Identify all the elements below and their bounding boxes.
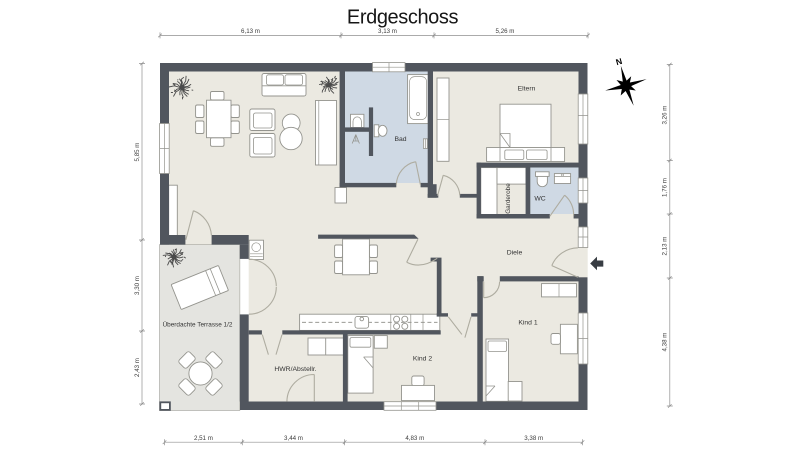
svg-text:4,38 m: 4,38 m — [662, 333, 669, 352]
svg-text:Eltern: Eltern — [518, 85, 536, 92]
svg-text:6,13 m: 6,13 m — [241, 28, 260, 35]
svg-text:2,13 m: 2,13 m — [662, 237, 669, 256]
svg-text:WC: WC — [534, 196, 545, 203]
svg-text:Diele: Diele — [507, 249, 523, 256]
svg-text:Erdgeschoss: Erdgeschoss — [347, 7, 459, 29]
svg-text:Kind 2: Kind 2 — [413, 355, 432, 362]
svg-text:Bad: Bad — [394, 136, 406, 143]
svg-text:Kind 1: Kind 1 — [518, 320, 537, 327]
svg-text:3,38 m: 3,38 m — [524, 435, 543, 442]
svg-text:2,51 m: 2,51 m — [194, 435, 213, 442]
svg-text:4,83 m: 4,83 m — [405, 435, 424, 442]
svg-text:3,13 m: 3,13 m — [378, 28, 397, 35]
svg-text:5,85 m: 5,85 m — [134, 143, 141, 162]
svg-text:Überdachte Terrasse 1/2: Überdachte Terrasse 1/2 — [163, 321, 233, 329]
svg-text:2,43 m: 2,43 m — [134, 358, 141, 377]
svg-text:Garderobe: Garderobe — [505, 183, 512, 214]
svg-text:5,26 m: 5,26 m — [496, 28, 515, 35]
svg-text:3,26 m: 3,26 m — [662, 106, 669, 125]
svg-text:HWR/Abstellr.: HWR/Abstellr. — [274, 366, 316, 373]
svg-text:1,76 m: 1,76 m — [662, 178, 669, 197]
svg-text:3,30 m: 3,30 m — [134, 276, 141, 295]
svg-text:3,44 m: 3,44 m — [284, 435, 303, 442]
